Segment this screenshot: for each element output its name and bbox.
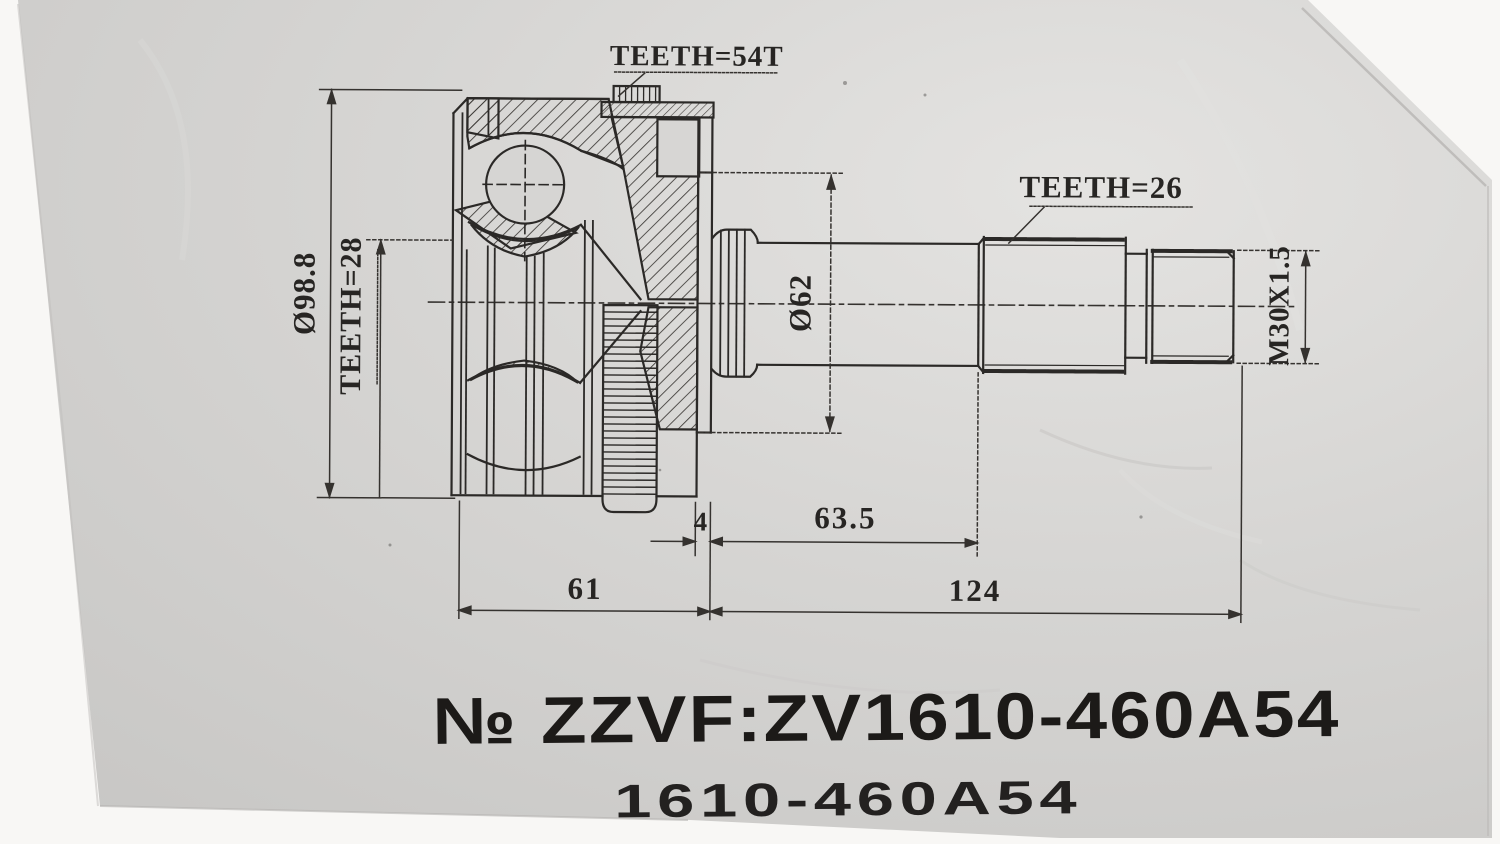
label-dim-124: 124 <box>949 573 1002 608</box>
label-dim-61: 61 <box>567 571 602 606</box>
label-dim-4: 4 <box>694 506 708 536</box>
label-diameter-98-8: Ø98.8 <box>286 252 321 336</box>
photo-of-technical-drawing: TEETH=54T TEETH=26 Ø98.8 TEETH=28 Ø62 M3… <box>0 0 1500 844</box>
label-teeth-28: TEETH=28 <box>334 236 368 395</box>
part-number-main: № ZZVF:ZV1610-460A54 <box>432 676 1341 758</box>
part-number-secondary: 1610-460A54 <box>614 770 1082 827</box>
label-dim-63-5: 63.5 <box>814 500 876 535</box>
label-diameter-62: Ø62 <box>782 274 817 332</box>
teeth-26-underline <box>1030 206 1193 207</box>
label-thread-m30: M30X1.5 <box>1263 245 1296 366</box>
label-teeth-26: TEETH=26 <box>1019 169 1183 205</box>
label-teeth-54t: TEETH=54T <box>610 40 784 73</box>
cv-joint-drawing-svg: TEETH=54T TEETH=26 Ø98.8 TEETH=28 Ø62 M3… <box>0 0 1500 844</box>
